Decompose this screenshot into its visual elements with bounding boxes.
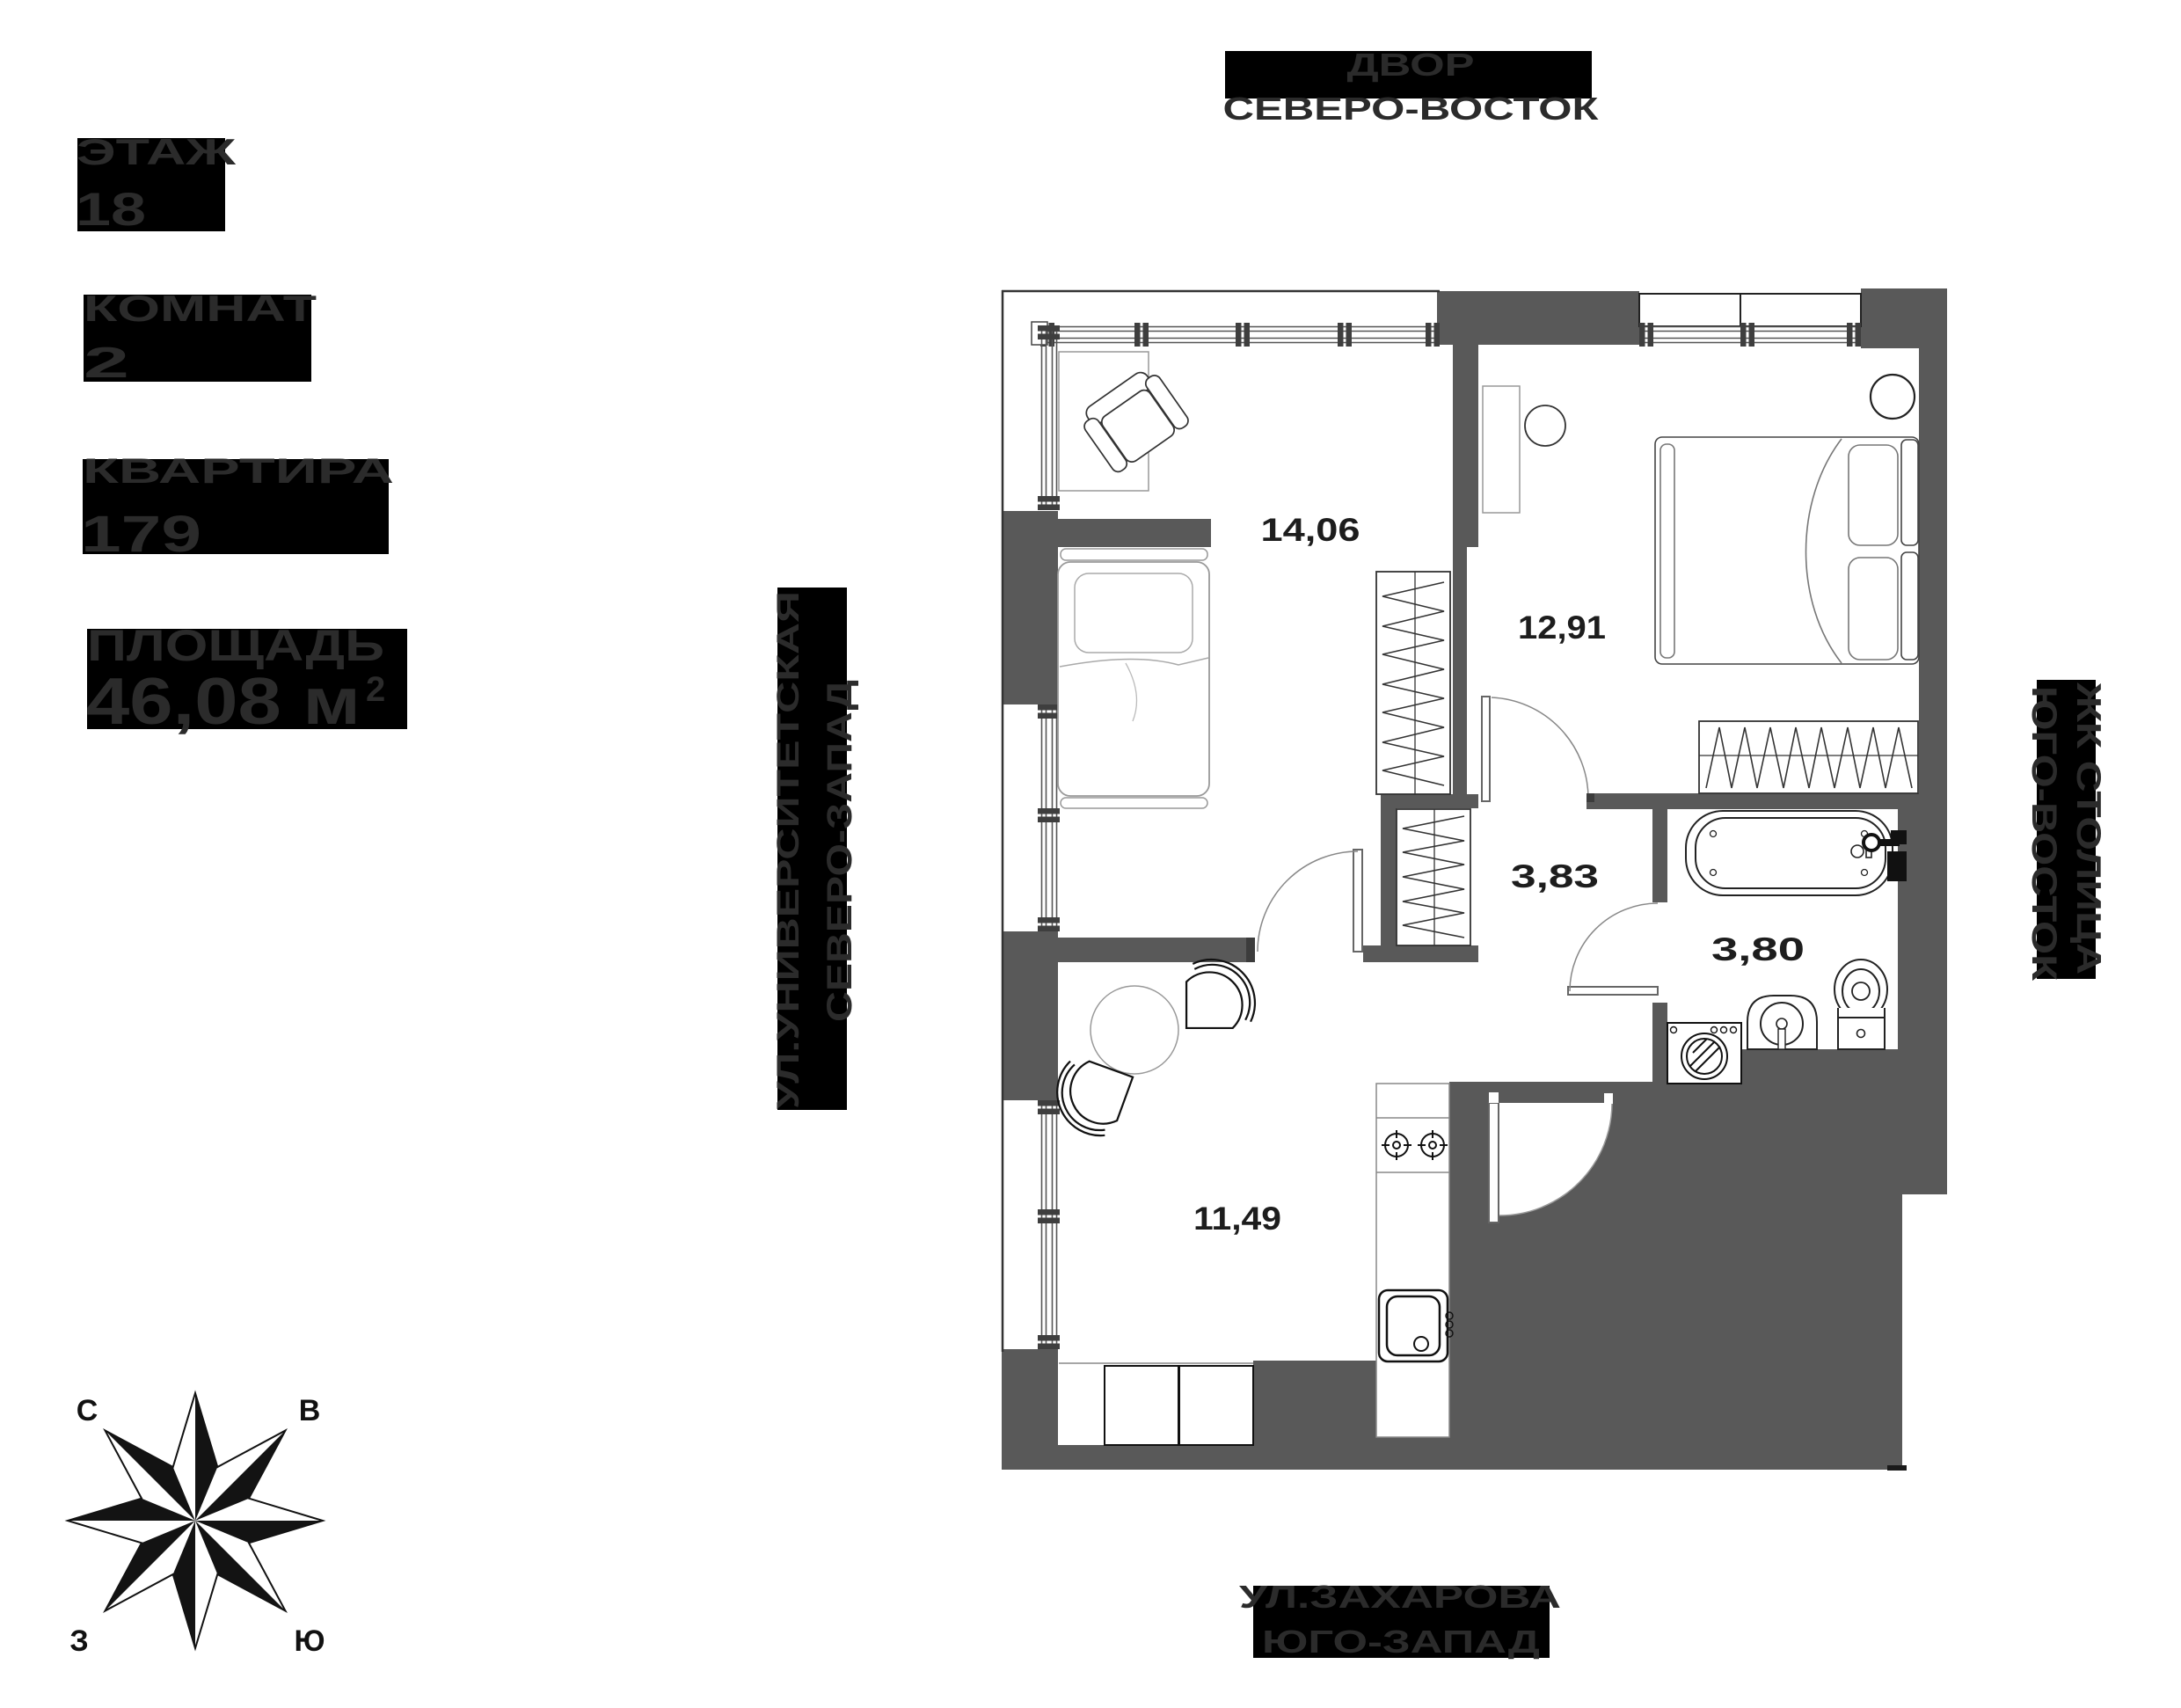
svg-text:ЮГО-ЗАПАД: ЮГО-ЗАПАД [1262, 1624, 1540, 1660]
svg-text:КВАРТИРА: КВАРТИРА [83, 452, 394, 491]
svg-text:КОМНАТ: КОМНАТ [84, 288, 317, 329]
svg-text:46,08 м: 46,08 м [86, 664, 361, 738]
svg-text:ДВОР: ДВОР [1347, 47, 1475, 83]
svg-text:179: 179 [81, 506, 201, 563]
svg-text:УЛ.УНИВЕРСИТЕТСКАЯ: УЛ.УНИВЕРСИТЕТСКАЯ [771, 591, 806, 1109]
svg-text:СЕВЕРО-ВОСТОК: СЕВЕРО-ВОСТОК [1223, 91, 1600, 127]
svg-text:14,06: 14,06 [1261, 512, 1360, 548]
svg-text:12,91: 12,91 [1518, 609, 1606, 646]
svg-text:2: 2 [84, 339, 129, 387]
svg-text:УЛ.ЗАХАРОВА: УЛ.ЗАХАРОВА [1239, 1579, 1561, 1615]
svg-text:3,80: 3,80 [1711, 931, 1805, 967]
svg-text:ЮГО-ВОСТОК: ЮГО-ВОСТОК [2024, 686, 2063, 982]
svg-text:ПЛОЩАДЬ: ПЛОЩАДЬ [87, 621, 384, 670]
svg-text:3,83: 3,83 [1511, 858, 1599, 894]
svg-text:С: С [77, 1394, 98, 1427]
svg-text:11,49: 11,49 [1193, 1201, 1281, 1237]
svg-text:Ю: Ю [294, 1624, 325, 1658]
svg-text:18: 18 [76, 184, 146, 236]
svg-text:ЭТАЖ: ЭТАЖ [77, 131, 237, 172]
svg-text:ЖК СТОЛИЦА: ЖК СТОЛИЦА [2069, 682, 2107, 974]
svg-text:СЕВЕРО-ЗАПАД: СЕВЕРО-ЗАПАД [821, 680, 859, 1022]
svg-text:В: В [299, 1394, 321, 1427]
svg-text:З: З [69, 1624, 88, 1658]
svg-text:2: 2 [366, 670, 385, 709]
